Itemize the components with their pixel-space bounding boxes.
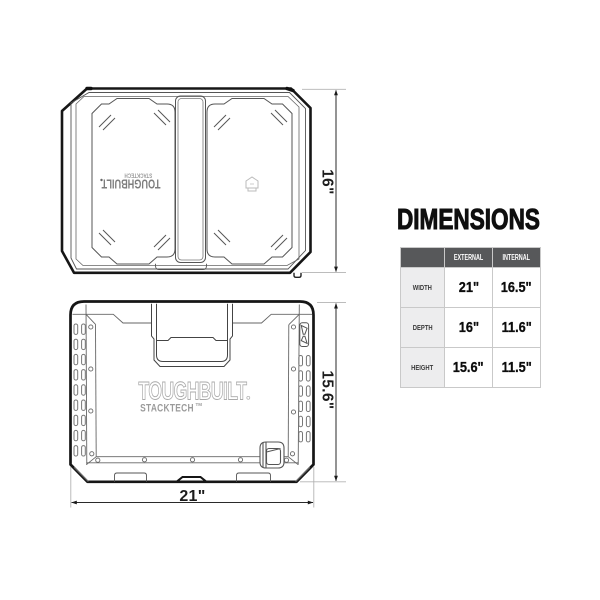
svg-text:15.6": 15.6" [319,370,336,409]
svg-text:TM: TM [196,402,203,407]
svg-text:STACKTECH: STACKTECH [140,402,194,415]
svg-text:16": 16" [319,169,336,194]
svg-text:STACKTECH: STACKTECH [124,171,152,178]
svg-text:TOUGHBUILT: TOUGHBUILT [139,378,247,406]
svg-text:21": 21" [179,488,205,505]
